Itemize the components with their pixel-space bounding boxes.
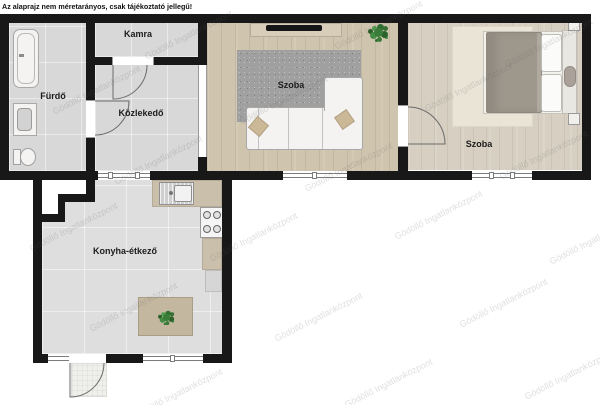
bathtub-faucet-icon bbox=[19, 54, 24, 57]
watermark-text: Gödöllő Ingatlanközpont bbox=[523, 349, 600, 402]
window-mullion bbox=[489, 172, 494, 179]
room-label-kamra: Kamra bbox=[110, 29, 166, 39]
tv bbox=[266, 25, 322, 31]
watermark-text: Gödöllő Ingatlanközpont bbox=[458, 277, 549, 330]
wall bbox=[398, 145, 408, 171]
doorway-opening bbox=[98, 171, 150, 180]
wall-opening bbox=[198, 65, 207, 157]
doormat bbox=[71, 363, 107, 397]
window bbox=[143, 354, 203, 363]
washbasin bbox=[13, 103, 37, 136]
wall bbox=[398, 23, 408, 105]
wall bbox=[222, 180, 232, 354]
wall bbox=[106, 354, 143, 363]
watermark-text: Gödöllő Ingatlanközpont bbox=[548, 214, 600, 267]
floorplan-canvas: Az alaprajz nem méretarányos, csak tájék… bbox=[0, 0, 600, 405]
burner-icon bbox=[213, 211, 221, 219]
watermark-text: Gödöllő Ingatlanközpont bbox=[393, 189, 484, 242]
burner-icon bbox=[203, 211, 211, 219]
bathtub bbox=[13, 29, 39, 88]
wall bbox=[86, 136, 95, 171]
plant-icon bbox=[374, 28, 383, 37]
kitchen-cabinet bbox=[202, 238, 222, 270]
building-notch bbox=[42, 180, 86, 194]
wall bbox=[532, 171, 591, 180]
wall bbox=[33, 354, 48, 363]
window bbox=[283, 171, 347, 180]
burner-icon bbox=[213, 225, 221, 233]
window-mullion bbox=[510, 172, 515, 179]
door-jamb bbox=[108, 172, 113, 179]
bathtub-inner bbox=[17, 33, 35, 84]
wall bbox=[0, 23, 9, 180]
wall bbox=[198, 23, 207, 65]
room-label-szoba-halo: Szoba bbox=[451, 139, 507, 149]
wall bbox=[0, 171, 98, 180]
bed-pillow bbox=[541, 34, 562, 72]
window-mullion bbox=[170, 355, 175, 362]
stove bbox=[200, 207, 223, 238]
wall bbox=[198, 157, 207, 171]
burner-icon bbox=[203, 225, 211, 233]
building-notch bbox=[42, 194, 58, 214]
kitchen-sink bbox=[159, 182, 194, 205]
room-label-furdo: Fürdő bbox=[30, 91, 76, 101]
watermark-text: Gödöllő Ingatlanközpont bbox=[133, 367, 224, 405]
sofa-chaise bbox=[324, 77, 363, 111]
watermark-text: Gödöllő Ingatlanközpont bbox=[273, 291, 364, 344]
wall bbox=[86, 57, 112, 65]
wall bbox=[203, 354, 232, 363]
wall bbox=[150, 171, 283, 180]
room-label-szoba-nappali: Szoba bbox=[263, 80, 319, 90]
entry-door-gap bbox=[69, 354, 106, 363]
wall bbox=[347, 171, 472, 180]
window bbox=[48, 354, 69, 363]
washbasin-bowl bbox=[17, 108, 32, 131]
sink-bowl bbox=[174, 185, 192, 202]
nightstand bbox=[568, 113, 580, 125]
wall bbox=[33, 214, 65, 222]
table-plant-icon bbox=[163, 314, 170, 321]
dining-table bbox=[138, 297, 193, 336]
sofa-cushion-seam bbox=[288, 108, 289, 149]
kitchen-cabinet bbox=[205, 270, 222, 292]
wall bbox=[0, 14, 591, 23]
wall bbox=[582, 23, 591, 180]
watermark-text: Gödöllő Ingatlanközpont bbox=[343, 357, 434, 405]
bed-pillow bbox=[541, 74, 562, 112]
toilet-bowl bbox=[20, 148, 36, 166]
window bbox=[472, 171, 532, 180]
wall bbox=[33, 180, 42, 363]
door-jamb bbox=[135, 172, 140, 179]
pantry-door-gap bbox=[112, 57, 154, 65]
bed-duvet bbox=[486, 32, 542, 113]
room-label-kozlekedo: Közlekedő bbox=[105, 108, 177, 118]
bathroom-door-gap bbox=[86, 100, 95, 138]
window-mullion bbox=[312, 172, 317, 179]
bedroom-door-gap bbox=[398, 105, 408, 147]
faucet-icon bbox=[169, 191, 173, 195]
wall bbox=[58, 194, 95, 202]
hallway-floor bbox=[95, 65, 198, 171]
bolster-pillow bbox=[564, 66, 576, 87]
disclaimer-text: Az alaprajz nem méretarányos, csak tájék… bbox=[2, 2, 192, 11]
room-label-konyha: Konyha-étkező bbox=[85, 246, 165, 256]
sofa-cushion-seam bbox=[322, 108, 323, 149]
